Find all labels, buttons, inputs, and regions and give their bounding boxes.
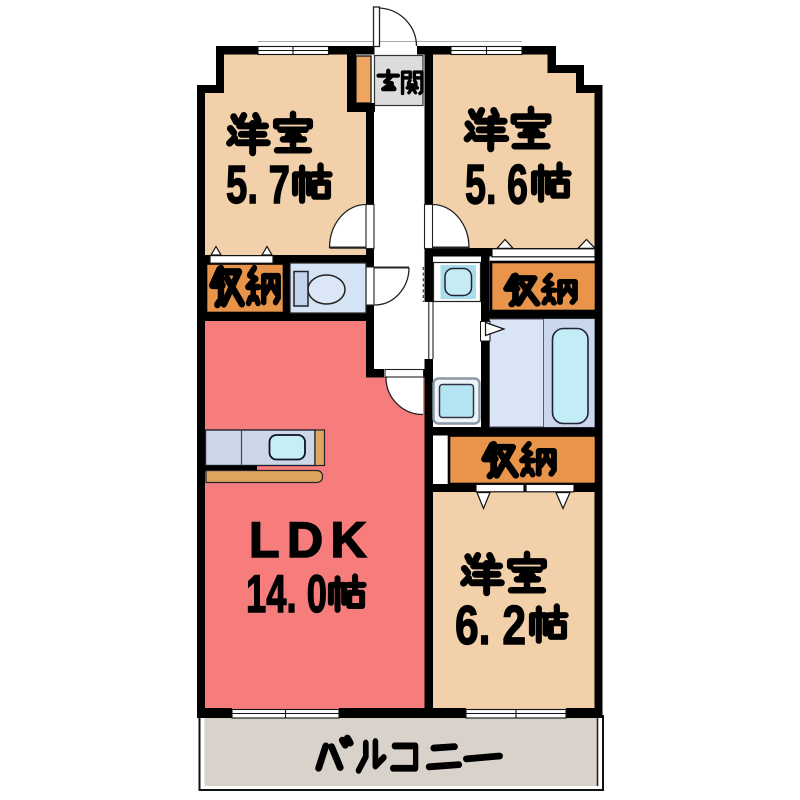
svg-text:6. 2: 6. 2 — [455, 594, 526, 656]
svg-text:5. 6: 5. 6 — [465, 153, 528, 216]
svg-text:14. 0: 14. 0 — [246, 565, 327, 624]
svg-text:5. 7: 5. 7 — [226, 155, 290, 215]
svg-text:LDK: LDK — [249, 512, 374, 568]
